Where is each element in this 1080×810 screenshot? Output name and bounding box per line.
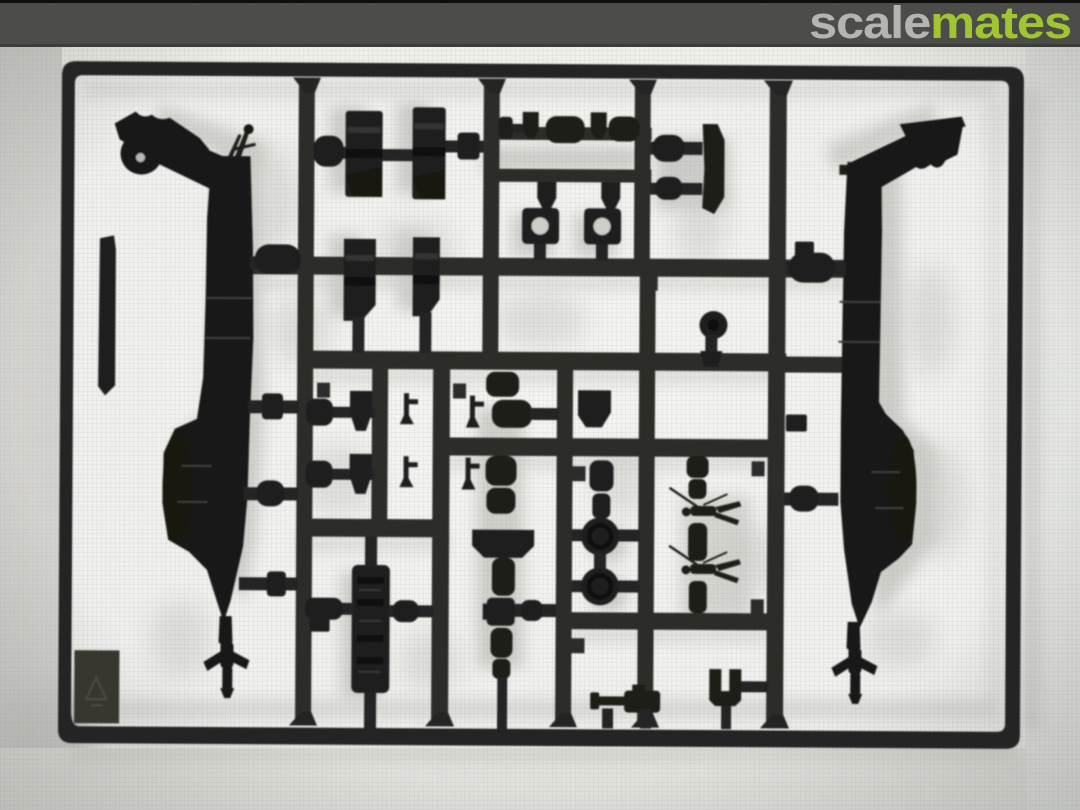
svg-text:scalemates: scalemates xyxy=(809,0,1071,48)
